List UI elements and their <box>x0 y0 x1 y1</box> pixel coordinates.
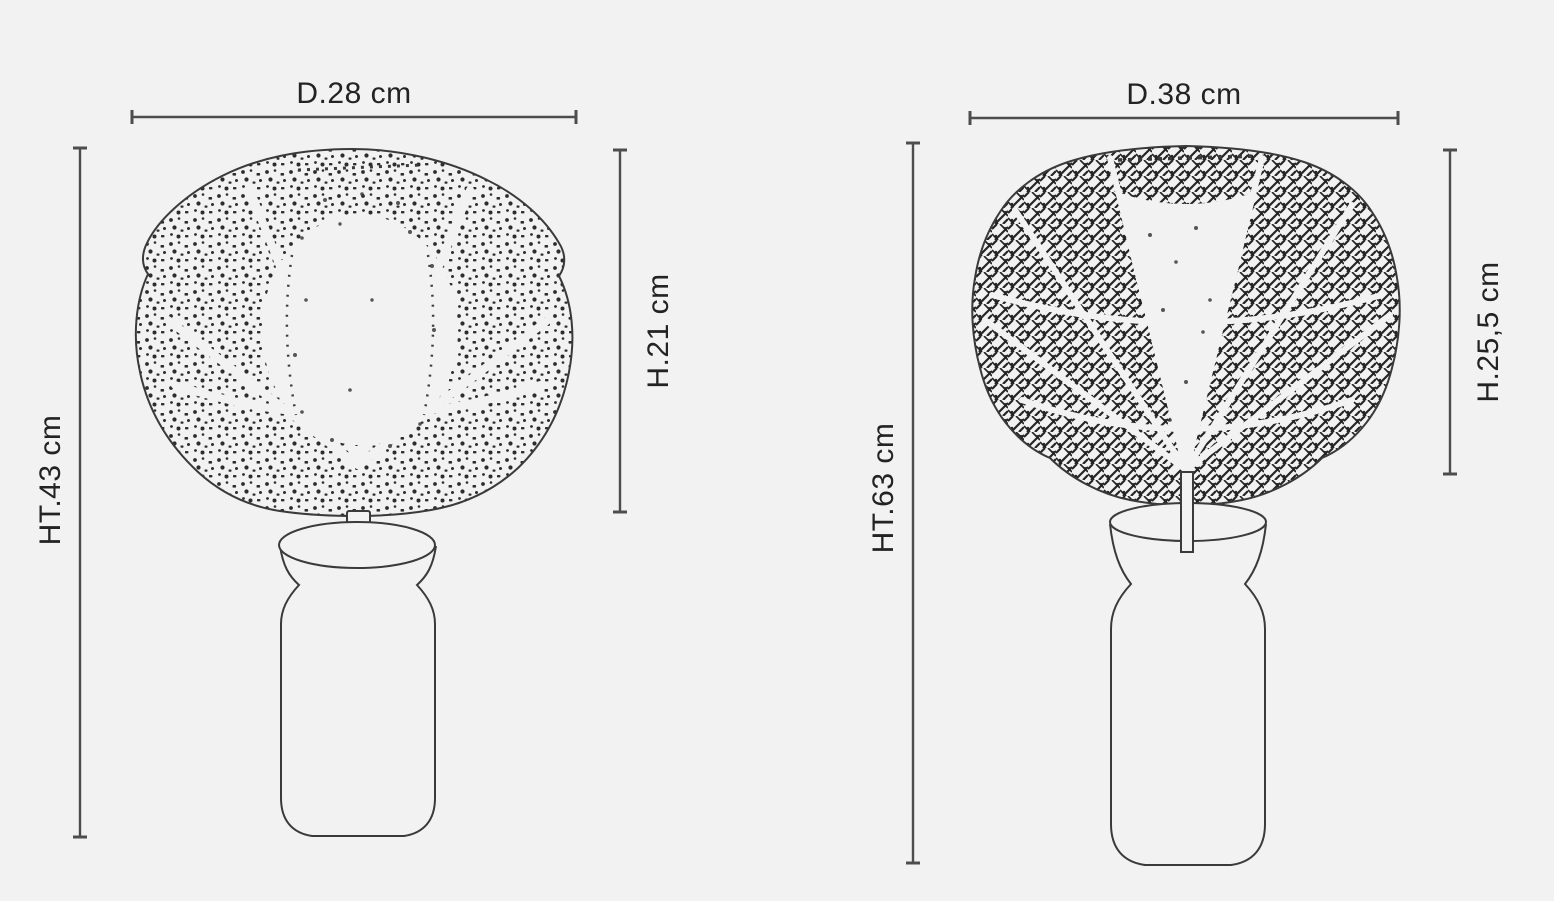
diagram-svg: D.28 cm HT.43 cm H.21 cm <box>0 0 1554 901</box>
large-lamp-shade-height-dimension-line <box>1443 150 1457 474</box>
small-lamp-base <box>280 546 436 836</box>
large-lamp-total-height-label: HT.63 cm <box>867 423 900 554</box>
large-lamp-base <box>1110 524 1266 865</box>
large-lamp-total-height-dimension-line <box>906 143 920 863</box>
lamp-dimension-diagram: D.28 cm HT.43 cm H.21 cm <box>0 0 1554 901</box>
large-lamp-shade-height-label: H.25,5 cm <box>1472 261 1505 402</box>
small-lamp-diameter-dimension-line <box>132 110 576 124</box>
small-lamp-total-height-label: HT.43 cm <box>34 415 67 546</box>
small-lamp-shade-height-label: H.21 cm <box>642 273 675 388</box>
small-lamp-diameter-label: D.28 cm <box>296 77 411 110</box>
small-lamp-base-rim <box>279 522 435 568</box>
large-lamp-stem <box>1181 472 1193 552</box>
small-lamp-total-height-dimension-line <box>73 148 87 837</box>
large-lamp-drawing <box>972 146 1399 865</box>
large-lamp-diameter-label: D.38 cm <box>1126 78 1241 111</box>
large-lamp-diameter-dimension-line <box>970 111 1398 125</box>
small-lamp-drawing <box>136 149 573 836</box>
small-lamp-shade-height-dimension-line <box>613 150 627 512</box>
